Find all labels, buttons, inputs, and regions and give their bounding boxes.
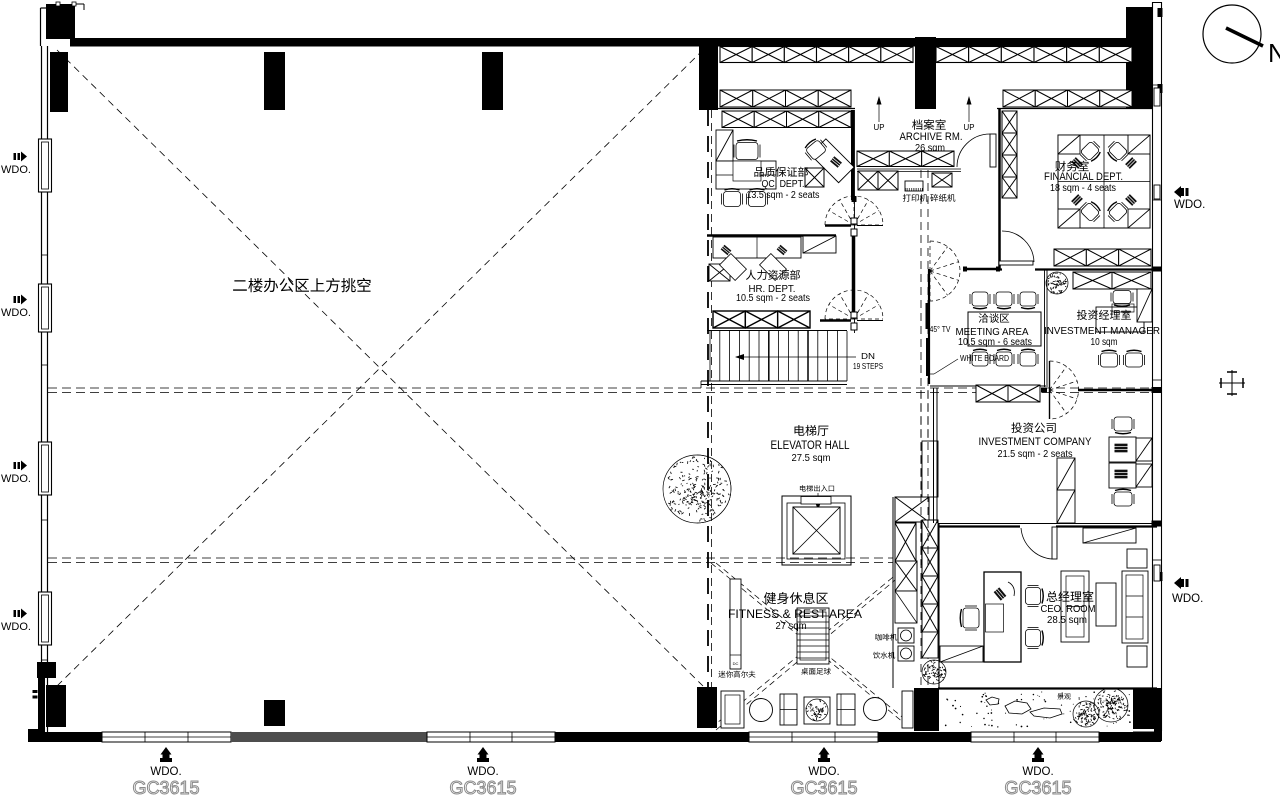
svg-text:WDO.: WDO. [467, 766, 498, 778]
svg-text:GC3615: GC3615 [133, 778, 200, 797]
svg-text:WDO.: WDO. [1, 473, 31, 485]
svg-text:27.5 sqm: 27.5 sqm [792, 452, 831, 464]
svg-text:18 sqm - 4 seats: 18 sqm - 4 seats [1050, 183, 1116, 194]
svg-text:DC: DC [733, 661, 739, 666]
svg-text:WDO.: WDO. [1, 164, 31, 176]
svg-text:GC3615: GC3615 [450, 778, 517, 797]
svg-text:WDO.: WDO. [1022, 766, 1053, 778]
svg-text:13.5 sqm - 2 seats: 13.5 sqm - 2 seats [747, 190, 820, 201]
svg-text:ARCHIVE RM.: ARCHIVE RM. [900, 131, 963, 143]
svg-text:WDO.: WDO. [1, 307, 31, 319]
svg-text:FITNESS & REST AREA: FITNESS & REST AREA [728, 607, 862, 621]
svg-text:WDO.: WDO. [808, 766, 839, 778]
svg-text:WDO.: WDO. [1, 621, 31, 633]
svg-text:WDO.: WDO. [1174, 199, 1205, 211]
svg-text:WHITE BOARD: WHITE BOARD [960, 354, 1009, 363]
svg-text:10.5 sqm - 6 seats: 10.5 sqm - 6 seats [958, 337, 1032, 348]
svg-text:GC3615: GC3615 [1005, 778, 1072, 797]
svg-text:28.5 sqm: 28.5 sqm [1047, 614, 1087, 626]
svg-text:10.5 sqm - 2 seats: 10.5 sqm - 2 seats [736, 293, 810, 304]
svg-text:19 STEPS: 19 STEPS [853, 361, 883, 371]
svg-text:INVESTMENT MANAGER: INVESTMENT MANAGER [1044, 325, 1160, 337]
svg-text:DN: DN [861, 351, 875, 361]
svg-text:UP: UP [874, 123, 885, 132]
svg-text:QC. DEPT.: QC. DEPT. [762, 178, 805, 190]
svg-text:WDO.: WDO. [1172, 593, 1203, 605]
svg-text:WDO.: WDO. [150, 766, 181, 778]
svg-text:INVESTMENT COMPANY: INVESTMENT COMPANY [979, 436, 1093, 448]
svg-text:N: N [1268, 38, 1280, 68]
svg-text:10 sqm: 10 sqm [1091, 337, 1118, 348]
svg-text:ELEVATOR HALL: ELEVATOR HALL [771, 440, 851, 452]
svg-text:FINANCIAL DEPT.: FINANCIAL DEPT. [1044, 171, 1123, 183]
svg-text:27 sqm: 27 sqm [776, 620, 807, 632]
svg-text:UP: UP [964, 123, 975, 132]
svg-text:GC3615: GC3615 [791, 778, 858, 797]
svg-text:45° TV: 45° TV [930, 325, 952, 334]
